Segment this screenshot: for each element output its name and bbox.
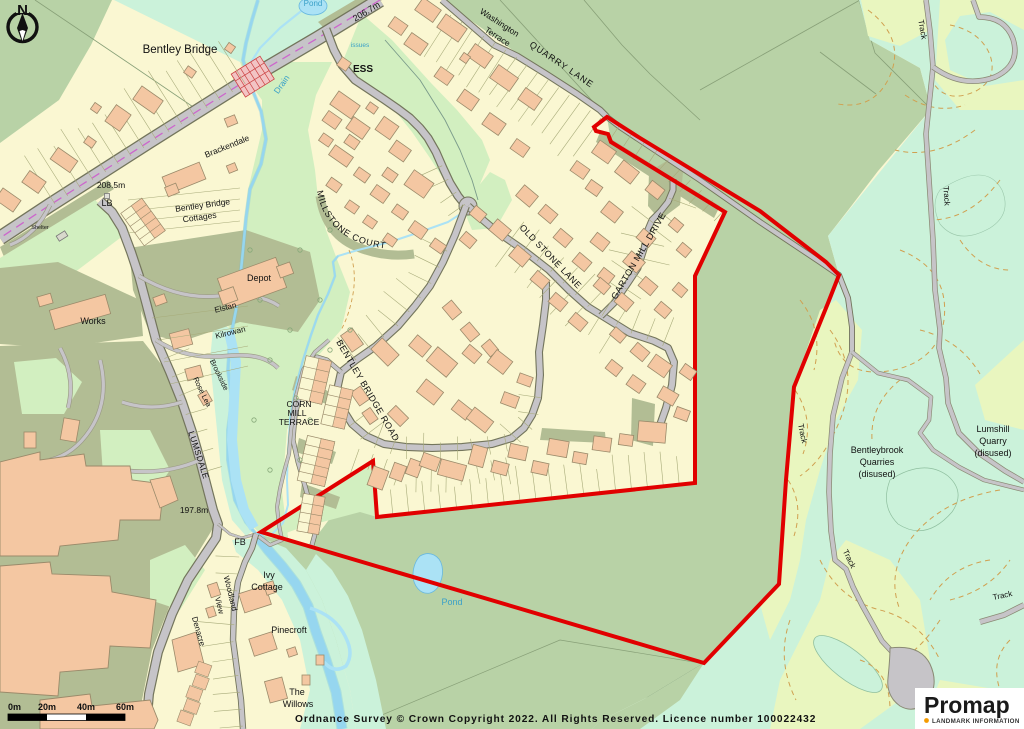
svg-text:20m: 20m (38, 702, 56, 712)
svg-text:Cottage: Cottage (251, 582, 283, 592)
svg-text:Pond: Pond (441, 597, 462, 607)
svg-text:0m: 0m (8, 702, 21, 712)
svg-text:issues: issues (351, 42, 370, 49)
svg-text:ESS: ESS (353, 64, 373, 75)
svg-text:Pinecroft: Pinecroft (271, 625, 307, 635)
svg-text:FB: FB (234, 537, 246, 547)
svg-text:The: The (289, 687, 305, 697)
svg-text:(disused): (disused) (858, 469, 895, 479)
svg-text:Bentley Bridge: Bentley Bridge (143, 44, 218, 56)
svg-text:(disused): (disused) (974, 448, 1011, 458)
svg-text:Works: Works (80, 316, 106, 326)
svg-text:Track: Track (941, 186, 951, 207)
svg-text:Pond: Pond (304, 0, 323, 8)
svg-text:LB: LB (101, 198, 112, 208)
svg-text:Shelter: Shelter (31, 225, 49, 231)
svg-text:Promap: Promap (924, 692, 1010, 718)
svg-text:40m: 40m (77, 702, 95, 712)
svg-text:TERRACE: TERRACE (279, 417, 320, 427)
svg-text:197.8m: 197.8m (180, 505, 208, 515)
svg-text:Quarries: Quarries (860, 457, 895, 467)
svg-text:Depot: Depot (247, 273, 272, 283)
svg-text:Bentleybrook: Bentleybrook (851, 445, 904, 455)
svg-text:Ordnance Survey © Crown Copyri: Ordnance Survey © Crown Copyright 2022. … (295, 714, 816, 725)
svg-text:Quarry: Quarry (979, 436, 1007, 446)
svg-text:Ivy: Ivy (263, 570, 275, 580)
svg-text:60m: 60m (116, 702, 134, 712)
svg-text:LANDMARK INFORMATION: LANDMARK INFORMATION (932, 718, 1020, 725)
svg-text:Lumshill: Lumshill (976, 424, 1009, 434)
svg-text:Willows: Willows (283, 699, 314, 709)
svg-text:208.5m: 208.5m (97, 180, 125, 190)
